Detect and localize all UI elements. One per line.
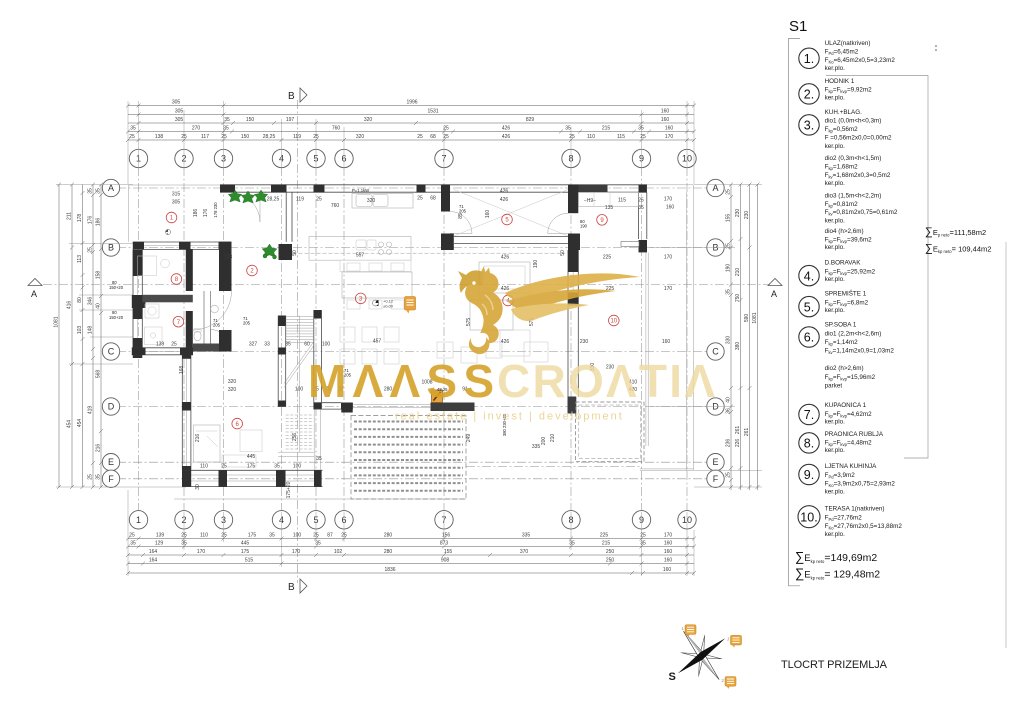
svg-text:190: 190 — [580, 224, 588, 229]
svg-text:175+20: 175+20 — [286, 481, 292, 498]
svg-text:Fkv=1,68m2x0,3=0,5m2: Fkv=1,68m2x0,3=0,5m2 — [825, 172, 891, 180]
svg-text:150: 150 — [246, 117, 255, 123]
svg-text:170: 170 — [664, 533, 673, 539]
svg-text:TLOCRT PRIZEMLJA: TLOCRT PRIZEMLJA — [781, 659, 888, 671]
svg-text:ker.plo.: ker.plo. — [825, 244, 846, 251]
svg-text:ker.plo.: ker.plo. — [825, 276, 846, 283]
svg-text:25: 25 — [341, 533, 347, 539]
svg-text:F =0,56m2x0,0=0,00m2: F =0,56m2x0,0=0,00m2 — [825, 135, 892, 142]
svg-text:205: 205 — [459, 209, 467, 214]
svg-text:3.: 3. — [804, 119, 814, 133]
svg-text:25: 25 — [417, 134, 423, 140]
svg-text:10: 10 — [610, 319, 617, 325]
svg-text:205: 205 — [243, 321, 251, 326]
svg-text:908: 908 — [441, 558, 450, 564]
svg-text:1531: 1531 — [427, 109, 438, 115]
svg-text:205: 205 — [213, 323, 221, 328]
svg-text:35: 35 — [88, 188, 94, 194]
svg-text:175: 175 — [247, 464, 256, 470]
svg-text:305: 305 — [172, 100, 181, 106]
svg-text:B: B — [108, 243, 114, 253]
svg-text:426: 426 — [501, 286, 510, 292]
svg-text:138: 138 — [155, 134, 164, 140]
svg-text:F: F — [713, 474, 719, 484]
svg-text:85: 85 — [458, 213, 464, 219]
svg-text:170: 170 — [664, 255, 673, 261]
svg-text:750: 750 — [735, 294, 741, 303]
svg-text:320: 320 — [367, 198, 376, 204]
svg-text:ULAZ(natkriven): ULAZ(natkriven) — [825, 40, 871, 47]
svg-text:LJETNA KUHINJA: LJETNA KUHINJA — [825, 463, 878, 470]
svg-text:445: 445 — [241, 541, 250, 547]
svg-text:dio1 (0,0m<h<0,3m): dio1 (0,0m<h<0,3m) — [825, 118, 882, 125]
svg-text:Fkp=Fkvp=25,92m2: Fkp=Fkvp=25,92m2 — [825, 269, 876, 277]
svg-text:102: 102 — [334, 549, 343, 555]
svg-text:real estate | invest | develop: real estate | invest | development — [395, 411, 623, 423]
svg-text:150: 150 — [241, 134, 250, 140]
svg-text:186: 186 — [193, 209, 199, 218]
svg-text:110: 110 — [200, 464, 208, 470]
svg-text:225: 225 — [600, 533, 609, 539]
svg-text:873: 873 — [440, 541, 449, 547]
svg-text:346: 346 — [88, 297, 94, 306]
svg-text:100: 100 — [293, 464, 302, 470]
svg-text:330: 330 — [726, 336, 732, 345]
svg-text:175: 175 — [248, 533, 257, 539]
svg-text:250: 250 — [606, 549, 615, 555]
svg-text:760: 760 — [332, 126, 341, 132]
svg-text:A: A — [771, 289, 777, 299]
svg-text:320: 320 — [364, 117, 373, 123]
svg-text:25: 25 — [417, 196, 423, 202]
svg-text:148: 148 — [88, 326, 94, 335]
svg-text:150+20: 150+20 — [109, 285, 124, 290]
svg-text:150+20: 150+20 — [109, 315, 124, 320]
svg-text:1: 1 — [136, 515, 141, 525]
svg-text:25: 25 — [88, 474, 94, 480]
svg-text:1081: 1081 — [752, 312, 758, 323]
svg-text:230: 230 — [580, 339, 589, 345]
svg-text:8.: 8. — [804, 437, 814, 451]
svg-text:35: 35 — [223, 126, 229, 132]
svg-text:160: 160 — [664, 541, 673, 547]
svg-text:176: 176 — [203, 209, 209, 218]
svg-text:33: 33 — [264, 342, 270, 348]
svg-text:dio1 (2,2m<h<2,6m): dio1 (2,2m<h<2,6m) — [825, 331, 882, 338]
svg-text:35: 35 — [269, 533, 275, 539]
svg-text:28,25: 28,25 — [263, 134, 276, 140]
svg-text:261: 261 — [744, 428, 750, 437]
svg-text:Fkp=Fkvp=15,96m2: Fkp=Fkvp=15,96m2 — [825, 374, 876, 382]
svg-text:5.: 5. — [804, 300, 814, 314]
svg-text:170: 170 — [197, 549, 206, 555]
svg-text:160: 160 — [664, 549, 673, 555]
svg-text:50: 50 — [292, 250, 298, 256]
svg-text:100: 100 — [293, 533, 302, 539]
svg-text:B: B — [288, 582, 295, 593]
svg-text:dio2 (0,3m<h<1,5m): dio2 (0,3m<h<1,5m) — [825, 155, 882, 162]
svg-text:103: 103 — [77, 326, 83, 335]
svg-text:25: 25 — [171, 342, 177, 348]
svg-text:139: 139 — [156, 533, 165, 539]
svg-text:170: 170 — [664, 197, 673, 203]
svg-text:230: 230 — [744, 211, 750, 220]
svg-text:25: 25 — [88, 247, 94, 253]
svg-text:160: 160 — [665, 126, 674, 132]
svg-text:164: 164 — [149, 549, 158, 555]
svg-text:10.: 10. — [800, 510, 817, 524]
svg-text:305: 305 — [172, 200, 181, 206]
svg-text:760: 760 — [331, 203, 340, 209]
svg-text:2.: 2. — [804, 88, 814, 102]
svg-text:557: 557 — [356, 253, 365, 259]
svg-text:25: 25 — [129, 134, 135, 140]
svg-text:35: 35 — [638, 126, 644, 132]
svg-text:50: 50 — [560, 250, 566, 256]
svg-text:100: 100 — [295, 387, 304, 393]
svg-text:454: 454 — [77, 419, 83, 428]
svg-text:197: 197 — [286, 117, 295, 123]
svg-text:25: 25 — [640, 134, 646, 140]
svg-text:139: 139 — [156, 342, 165, 348]
svg-text:dio4 (h>2,6m): dio4 (h>2,6m) — [825, 228, 864, 235]
svg-text:36: 36 — [726, 408, 732, 414]
svg-text:A: A — [31, 289, 37, 299]
svg-text:ker.plo.: ker.plo. — [825, 95, 846, 102]
svg-text:E: E — [712, 457, 718, 467]
svg-text:160: 160 — [661, 117, 670, 123]
svg-text:426: 426 — [502, 134, 511, 140]
svg-text:256: 256 — [292, 433, 298, 442]
svg-text:335: 335 — [522, 533, 531, 539]
svg-text:MΛΛSS: MΛΛSS — [308, 355, 494, 407]
svg-text:35: 35 — [96, 474, 102, 480]
svg-text:7.: 7. — [804, 408, 814, 422]
svg-text:25: 25 — [221, 464, 227, 470]
svg-text:380: 380 — [735, 342, 741, 351]
svg-text:35: 35 — [181, 541, 187, 547]
svg-text:270: 270 — [192, 126, 201, 132]
svg-text:28,25: 28,25 — [267, 197, 280, 203]
svg-text:dio3 (1,5m<h<2,2m): dio3 (1,5m<h<2,2m) — [825, 193, 882, 200]
svg-text:FKo=3,9m2x0,75=2,93m2: FKo=3,9m2x0,75=2,93m2 — [825, 481, 896, 489]
svg-text:261: 261 — [735, 426, 741, 435]
svg-text:SPREMIŠTE 1: SPREMIŠTE 1 — [825, 289, 867, 298]
svg-text:590: 590 — [744, 314, 750, 323]
svg-text:D: D — [108, 402, 115, 412]
svg-text:186: 186 — [96, 218, 102, 227]
svg-text:ker.plo.: ker.plo. — [825, 180, 846, 187]
svg-text:25: 25 — [129, 533, 135, 539]
svg-text:280: 280 — [384, 549, 393, 555]
svg-text:ker.plo.: ker.plo. — [825, 143, 846, 150]
svg-text:35: 35 — [130, 541, 136, 547]
svg-text:829: 829 — [526, 117, 535, 123]
svg-text:25: 25 — [221, 134, 227, 140]
svg-text:170: 170 — [665, 134, 674, 140]
svg-text:175: 175 — [241, 549, 250, 555]
svg-text:C: C — [108, 347, 115, 357]
svg-text:155: 155 — [444, 549, 453, 555]
svg-text:25: 25 — [443, 126, 449, 132]
svg-text:1.: 1. — [804, 52, 814, 66]
svg-text:135: 135 — [605, 205, 614, 211]
svg-text:ker.plo.: ker.plo. — [825, 419, 846, 426]
svg-text:F: F — [108, 474, 114, 484]
svg-text:119: 119 — [293, 134, 301, 140]
svg-text:ker.plo.: ker.plo. — [825, 531, 846, 538]
svg-text:515: 515 — [245, 558, 254, 564]
svg-text:−H9−: −H9− — [584, 198, 596, 204]
svg-text:320: 320 — [228, 379, 237, 385]
svg-text:110: 110 — [587, 134, 595, 140]
svg-text:35: 35 — [569, 541, 575, 547]
svg-text:370: 370 — [520, 549, 529, 555]
svg-text:60: 60 — [304, 342, 310, 348]
svg-text:35: 35 — [315, 541, 321, 547]
svg-text:S1: S1 — [789, 18, 807, 35]
svg-text:25: 25 — [181, 134, 187, 140]
svg-text:426: 426 — [502, 126, 511, 132]
svg-text:68: 68 — [430, 134, 436, 140]
svg-text:454: 454 — [67, 420, 73, 429]
svg-text:25: 25 — [443, 134, 449, 140]
svg-text:315: 315 — [172, 192, 181, 198]
svg-text:178: 178 — [77, 214, 83, 223]
svg-text:236: 236 — [726, 439, 732, 448]
svg-text:25: 25 — [726, 189, 732, 195]
svg-text:115: 115 — [617, 134, 625, 140]
svg-text:1081: 1081 — [54, 316, 60, 327]
svg-text:327: 327 — [249, 342, 258, 348]
svg-text:D.BORAVAK: D.BORAVAK — [825, 260, 862, 267]
svg-text:335: 335 — [532, 444, 541, 450]
svg-text:575: 575 — [466, 318, 472, 327]
svg-text:KUPAONICA 1: KUPAONICA 1 — [825, 402, 867, 409]
svg-text:25: 25 — [640, 533, 646, 539]
svg-text:ker.plo.: ker.plo. — [825, 218, 846, 225]
svg-text:∑Ekp neto= 109,44m2: ∑Ekp neto= 109,44m2 — [925, 243, 991, 255]
svg-text:158: 158 — [96, 271, 102, 280]
svg-text:210: 210 — [735, 268, 741, 277]
svg-text:168: 168 — [179, 366, 185, 375]
svg-text:parket: parket — [825, 383, 843, 390]
svg-text:S: S — [669, 671, 676, 683]
svg-text:426: 426 — [501, 255, 510, 261]
svg-text:35: 35 — [726, 289, 732, 295]
svg-text:225: 225 — [603, 255, 612, 261]
svg-text:35: 35 — [640, 541, 646, 547]
svg-text:305: 305 — [175, 109, 184, 115]
svg-text:568: 568 — [96, 370, 102, 379]
svg-text:ker.plo.: ker.plo. — [825, 65, 846, 72]
svg-text:160: 160 — [661, 109, 670, 115]
svg-text:25: 25 — [316, 197, 322, 203]
svg-text:J: J — [727, 637, 729, 642]
svg-text:226: 226 — [735, 439, 741, 448]
svg-text:419: 419 — [88, 406, 94, 415]
svg-text:170: 170 — [292, 549, 301, 555]
svg-text:ker.plo.: ker.plo. — [825, 447, 846, 454]
svg-text:25: 25 — [313, 134, 319, 140]
svg-text:416: 416 — [67, 301, 73, 310]
svg-text:25: 25 — [221, 533, 227, 539]
svg-text:215: 215 — [602, 126, 611, 132]
svg-text:25: 25 — [569, 134, 575, 140]
svg-text:35: 35 — [96, 188, 102, 194]
svg-text:dio2 (h>2,6m): dio2 (h>2,6m) — [825, 365, 864, 372]
svg-text:68: 68 — [430, 196, 436, 202]
svg-text:426: 426 — [500, 197, 509, 203]
svg-text:210: 210 — [550, 434, 556, 443]
svg-text:170: 170 — [664, 286, 673, 292]
svg-text:FKo=6,45m2x0,5=3,23m2: FKo=6,45m2x0,5=3,23m2 — [825, 57, 896, 65]
svg-text:25: 25 — [181, 533, 187, 539]
svg-text:305: 305 — [175, 117, 184, 123]
svg-text:ker.plo.: ker.plo. — [825, 489, 846, 496]
svg-text:Fkv=0,81m2x0,75=0,61m2: Fkv=0,81m2x0,75=0,61m2 — [825, 209, 898, 217]
svg-text:Fkv=1,14m2x0,9=1,03m2: Fkv=1,14m2x0,9=1,03m2 — [825, 348, 895, 356]
svg-text:117: 117 — [201, 134, 209, 140]
svg-text:6.: 6. — [804, 331, 814, 345]
svg-text:216: 216 — [96, 444, 102, 453]
svg-text:25: 25 — [726, 243, 732, 249]
svg-text:ker.plo.: ker.plo. — [825, 307, 846, 314]
svg-text:249: 249 — [466, 434, 472, 443]
svg-text:190: 190 — [726, 264, 732, 273]
svg-text:1996: 1996 — [406, 100, 417, 106]
svg-text:160: 160 — [485, 210, 491, 219]
svg-text:B: B — [288, 91, 295, 102]
svg-text:119: 119 — [296, 197, 304, 203]
svg-text:±0,00: ±0,00 — [383, 304, 394, 309]
svg-text:9.: 9. — [804, 468, 814, 482]
svg-text:35: 35 — [316, 456, 322, 462]
svg-text:113: 113 — [77, 255, 83, 263]
svg-text:35: 35 — [565, 126, 571, 132]
svg-text:115: 115 — [618, 198, 626, 204]
svg-text:100: 100 — [322, 342, 331, 348]
svg-text:155: 155 — [726, 214, 732, 223]
svg-text:E: E — [108, 457, 114, 467]
svg-text:80: 80 — [77, 297, 83, 303]
svg-text:320: 320 — [228, 387, 237, 393]
svg-text:TERASA 1(natkriven): TERASA 1(natkriven) — [825, 506, 885, 513]
svg-text:35: 35 — [224, 117, 230, 123]
svg-text:320: 320 — [356, 134, 365, 140]
svg-text:HODNIK 1: HODNIK 1 — [825, 78, 855, 85]
svg-text:85: 85 — [285, 342, 291, 348]
svg-text:35: 35 — [638, 205, 644, 211]
svg-text:110: 110 — [200, 533, 208, 539]
svg-text:280: 280 — [384, 533, 393, 539]
svg-text:216: 216 — [195, 434, 201, 443]
svg-text:200: 200 — [541, 437, 547, 446]
svg-text:457: 457 — [373, 339, 382, 345]
svg-text:160: 160 — [666, 205, 675, 211]
svg-text:426: 426 — [500, 189, 509, 195]
svg-text:160: 160 — [662, 339, 671, 345]
svg-text:PRAONICA RUBLJA: PRAONICA RUBLJA — [825, 431, 884, 438]
svg-text:25: 25 — [313, 533, 319, 539]
svg-text:SP.SOBA 1: SP.SOBA 1 — [825, 322, 857, 329]
svg-text:FKo=27,76m2x0,5=13,88m2: FKo=27,76m2x0,5=13,88m2 — [825, 523, 903, 531]
svg-text:40: 40 — [726, 397, 732, 403]
svg-text:35: 35 — [130, 126, 136, 132]
svg-text:211: 211 — [67, 212, 73, 220]
svg-text:129: 129 — [155, 541, 164, 547]
svg-text:156: 156 — [442, 533, 451, 539]
svg-text:40: 40 — [96, 303, 102, 309]
svg-text:35: 35 — [274, 464, 280, 470]
svg-text:25: 25 — [638, 198, 644, 204]
svg-text:176: 176 — [88, 216, 94, 225]
svg-text:178 230: 178 230 — [213, 202, 218, 218]
svg-text:P=1.1kW: P=1.1kW — [352, 188, 369, 193]
svg-text:215: 215 — [602, 541, 611, 547]
svg-text:178: 178 — [224, 255, 233, 261]
svg-text:164: 164 — [149, 558, 158, 564]
svg-text:426: 426 — [501, 339, 510, 345]
svg-text:25: 25 — [726, 472, 732, 478]
svg-text:250: 250 — [606, 558, 615, 564]
svg-text:4.: 4. — [804, 269, 814, 283]
svg-text:87: 87 — [327, 533, 333, 539]
svg-text:160: 160 — [664, 558, 673, 564]
svg-text:230: 230 — [735, 209, 741, 218]
svg-text:1836: 1836 — [384, 567, 395, 573]
svg-text:KUH.+BLAG.: KUH.+BLAG. — [825, 109, 863, 116]
svg-text:∑Ep neto=111,58m2: ∑Ep neto=111,58m2 — [925, 226, 986, 238]
svg-text:445: 445 — [247, 454, 256, 460]
svg-text:190: 190 — [533, 260, 539, 269]
svg-text:160: 160 — [663, 567, 672, 573]
svg-text:30: 30 — [195, 484, 201, 490]
